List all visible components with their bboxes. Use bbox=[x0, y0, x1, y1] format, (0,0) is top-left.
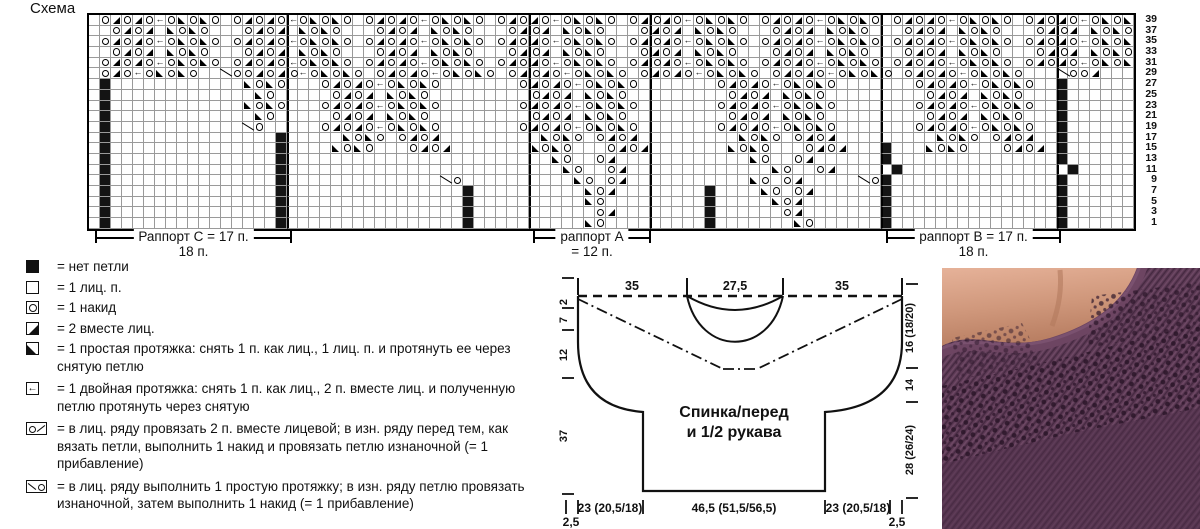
chart-cell-knit-stitch bbox=[243, 154, 254, 165]
chart-cell-yarn-over bbox=[1002, 58, 1013, 69]
chart-cell-knit-stitch bbox=[661, 90, 672, 101]
chart-cell-knit-stitch bbox=[166, 165, 177, 176]
chart-cell-no-stitch bbox=[1057, 79, 1068, 90]
chart-cell-knit-stitch bbox=[518, 186, 529, 197]
chart-cell-yarn-over bbox=[342, 101, 353, 112]
chart-cell-yarn-over bbox=[1013, 90, 1024, 101]
chart-cell-knit-stitch bbox=[661, 175, 672, 186]
yarnover-icon bbox=[26, 299, 50, 319]
ssk-symbol bbox=[26, 342, 39, 355]
chart-cell-k2tog bbox=[826, 133, 837, 144]
chart-cell-k2tog bbox=[606, 154, 617, 165]
chart-cell-knit-stitch bbox=[892, 133, 903, 144]
chart-cell-knit-stitch bbox=[210, 68, 221, 79]
chart-cell-double-decrease bbox=[815, 15, 826, 26]
chart-cell-k2tog bbox=[650, 26, 661, 37]
legend-item: = в лиц. ряду выполнить 1 простую протяж… bbox=[26, 478, 538, 513]
chart-cell-knit-stitch bbox=[386, 165, 397, 176]
chart-cell-knit-stitch bbox=[1002, 218, 1013, 229]
chart-cell-knit-stitch bbox=[1035, 68, 1046, 79]
chart-cell-knit-stitch bbox=[353, 218, 364, 229]
chart-cell-knit-stitch bbox=[1101, 68, 1112, 79]
chart-cell-yarn-over bbox=[936, 15, 947, 26]
chart-cell-knit-stitch bbox=[1024, 197, 1035, 208]
chart-cell-knit-stitch bbox=[1112, 175, 1123, 186]
chart-cell-knit-stitch bbox=[672, 165, 683, 176]
chart-cell-knit-stitch bbox=[826, 197, 837, 208]
chart-cell-yarn-over bbox=[815, 90, 826, 101]
chart-cell-knit-stitch bbox=[1046, 197, 1057, 208]
chart-cell-knit-stitch bbox=[1090, 165, 1101, 176]
chart-cell-yarn-over bbox=[958, 36, 969, 47]
chart-cell-knit-stitch bbox=[485, 15, 496, 26]
chart-cell-knit-stitch bbox=[287, 197, 298, 208]
chart-cell-yarn-over bbox=[936, 101, 947, 112]
chart-cell-knit-stitch bbox=[496, 154, 507, 165]
chart-cell-knit-stitch bbox=[694, 186, 705, 197]
chart-cell-knit-stitch bbox=[727, 218, 738, 229]
dim-top-right: 35 bbox=[835, 279, 849, 293]
chart-cell-knit-stitch bbox=[705, 154, 716, 165]
chart-cell-knit-stitch bbox=[221, 133, 232, 144]
chart-cell-knit-stitch bbox=[364, 186, 375, 197]
chart-cell-k2tog bbox=[661, 36, 672, 47]
chart-cell-knit-stitch bbox=[969, 175, 980, 186]
chart-cell-knit-stitch bbox=[870, 101, 881, 112]
chart-cell-yarn-over bbox=[606, 122, 617, 133]
chart-cell-knit-stitch bbox=[210, 154, 221, 165]
chart-cell-knit-stitch bbox=[485, 36, 496, 47]
chart-cell-double-decrease bbox=[1079, 36, 1090, 47]
double-dec-icon bbox=[26, 380, 50, 415]
chart-cell-knit-stitch bbox=[298, 197, 309, 208]
chart-cell-knit-stitch bbox=[298, 143, 309, 154]
chart-cell-knit-stitch bbox=[826, 186, 837, 197]
chart-cell-knit-stitch bbox=[595, 175, 606, 186]
chart-cell-yarn-over bbox=[782, 15, 793, 26]
chart-cell-knit-stitch bbox=[771, 218, 782, 229]
chart-cell-knit-stitch bbox=[925, 218, 936, 229]
chart-cell-knit-stitch bbox=[584, 133, 595, 144]
chart-cell-knit-stitch bbox=[221, 154, 232, 165]
chart-cell-knit-stitch bbox=[353, 154, 364, 165]
chart-cell-knit-stitch bbox=[353, 58, 364, 69]
chart-cell-knit-stitch bbox=[573, 154, 584, 165]
knit-symbol bbox=[26, 281, 39, 294]
schematic-left-ticks bbox=[562, 278, 574, 494]
chart-cell-knit-stitch bbox=[265, 133, 276, 144]
chart-cell-knit-stitch bbox=[1123, 111, 1134, 122]
chart-cell-yarn-over bbox=[100, 58, 111, 69]
chart-cell-knit-stitch bbox=[694, 90, 705, 101]
dim-right-16: 16 (18/20) bbox=[904, 303, 916, 353]
chart-cell-double-decrease bbox=[771, 101, 782, 112]
chart-cell-knit-stitch bbox=[870, 79, 881, 90]
chart-cell-slip-decrease bbox=[606, 90, 617, 101]
chart-cell-k2tog bbox=[639, 143, 650, 154]
chart-cell-knit-stitch bbox=[1024, 90, 1035, 101]
chart-cell-knit-stitch bbox=[232, 207, 243, 218]
chart-cell-knit-stitch bbox=[947, 207, 958, 218]
chart-cell-knit-stitch bbox=[221, 90, 232, 101]
chart-cell-knit-stitch bbox=[111, 175, 122, 186]
chart-cell-yarn-over bbox=[320, 79, 331, 90]
chart-cell-knit-stitch bbox=[903, 207, 914, 218]
chart-cell-knit-stitch bbox=[474, 122, 485, 133]
chart-cell-knit-stitch bbox=[232, 79, 243, 90]
chart-cell-double-decrease bbox=[551, 58, 562, 69]
chart-cell-knit-stitch bbox=[760, 218, 771, 229]
chart-cell-knit-stitch bbox=[848, 218, 859, 229]
chart-cell-slip-decrease bbox=[199, 36, 210, 47]
legend-item-text: = 2 вместе лиц. bbox=[57, 320, 538, 340]
chart-cell-knit-stitch bbox=[232, 143, 243, 154]
dim-top-center: 27,5 bbox=[723, 279, 747, 293]
chart-cell-knit-stitch bbox=[199, 186, 210, 197]
chart-cell-knit-stitch bbox=[265, 122, 276, 133]
chart-cell-knit-stitch bbox=[243, 165, 254, 176]
chart-cell-knit-stitch bbox=[111, 111, 122, 122]
chart-cell-slip-decrease bbox=[419, 122, 430, 133]
chart-cell-knit-stitch bbox=[221, 111, 232, 122]
chart-cell-knit-stitch bbox=[1090, 122, 1101, 133]
chart-cell-k2tog bbox=[782, 47, 793, 58]
chart-cell-slip-decrease bbox=[980, 90, 991, 101]
chart-cell-knit-stitch bbox=[485, 101, 496, 112]
chart-cell-knit-stitch bbox=[122, 111, 133, 122]
chart-cell-yarn-over bbox=[738, 101, 749, 112]
chart-cell-double-decrease bbox=[683, 15, 694, 26]
k2tog-icon bbox=[26, 320, 50, 340]
chart-cell-knit-stitch bbox=[925, 175, 936, 186]
page-title: Схема bbox=[30, 0, 75, 17]
chart-cell-knit-stitch bbox=[969, 197, 980, 208]
chart-cell-knit-stitch bbox=[1112, 101, 1123, 112]
chart-cell-slip-decrease bbox=[991, 122, 1002, 133]
chart-cell-knit-stitch bbox=[628, 154, 639, 165]
chart-cell-knit-stitch bbox=[958, 197, 969, 208]
chart-cell-knit-stitch bbox=[815, 218, 826, 229]
chart-cell-yarn-over bbox=[991, 111, 1002, 122]
chart-cell-slip-decrease bbox=[408, 90, 419, 101]
chart-cell-knit-stitch bbox=[859, 218, 870, 229]
chart-cell-knit-stitch bbox=[144, 197, 155, 208]
piece-label-line1: Спинка/перед bbox=[679, 404, 788, 421]
chart-cell-knit-stitch bbox=[870, 47, 881, 58]
chart-cell-knit-stitch bbox=[661, 154, 672, 165]
chart-cell-slip-decrease bbox=[199, 15, 210, 26]
chart-cell-knit-stitch bbox=[683, 197, 694, 208]
chart-cell-knit-stitch bbox=[1035, 165, 1046, 176]
chart-cell-knit-stitch bbox=[518, 218, 529, 229]
chart-cell-knit-stitch bbox=[111, 101, 122, 112]
chart-cell-knit-stitch bbox=[320, 207, 331, 218]
chart-cell-knit-stitch bbox=[177, 197, 188, 208]
chart-cell-knit-stitch bbox=[859, 154, 870, 165]
chart-cell-no-stitch bbox=[881, 218, 892, 229]
piece-outline bbox=[578, 296, 902, 491]
chart-cell-yarn-over bbox=[529, 68, 540, 79]
chart-cell-k2tog bbox=[1024, 133, 1035, 144]
chart-cell-knit-stitch bbox=[716, 186, 727, 197]
chart-cell-yarn-over bbox=[386, 122, 397, 133]
chart-cell-knit-stitch bbox=[166, 218, 177, 229]
chart-cell-knit-stitch bbox=[309, 133, 320, 144]
chart-cell-k2tog bbox=[958, 90, 969, 101]
chart-cell-slip-decrease bbox=[837, 36, 848, 47]
chart-cell-knit-stitch bbox=[441, 186, 452, 197]
chart-cell-knit-stitch bbox=[298, 186, 309, 197]
chart-cell-knit-stitch bbox=[133, 154, 144, 165]
chart-cell-knit-stitch bbox=[485, 58, 496, 69]
chart-cell-knit-stitch bbox=[397, 207, 408, 218]
chart-cell-knit-stitch bbox=[958, 186, 969, 197]
chart-cell-slip-decrease bbox=[419, 79, 430, 90]
chart-cell-slip-decrease bbox=[958, 26, 969, 37]
piece-label-line2: и 1/2 рукава bbox=[687, 424, 782, 441]
chart-cell-yarn-over bbox=[232, 36, 243, 47]
chart-cell-yarn-over bbox=[760, 15, 771, 26]
chart-cell-knit-stitch bbox=[650, 154, 661, 165]
chart-cell-k2tog bbox=[353, 122, 364, 133]
chart-cell-yarn-over bbox=[661, 26, 672, 37]
chart-cell-yarn-over bbox=[298, 36, 309, 47]
chart-cell-knit-stitch bbox=[287, 101, 298, 112]
chart-cell-knit-stitch bbox=[254, 186, 265, 197]
chart-cell-yarn-over bbox=[276, 15, 287, 26]
chart-cell-yarn-over bbox=[1002, 36, 1013, 47]
chart-cell-knit-stitch bbox=[639, 218, 650, 229]
chart-cell-slip-decrease bbox=[320, 68, 331, 79]
chart-cell-knit-stitch bbox=[298, 165, 309, 176]
chart-cell-yarn-over bbox=[870, 175, 881, 186]
chart-cell-knit-stitch bbox=[540, 175, 551, 186]
chart-cell-knit-stitch bbox=[441, 111, 452, 122]
chart-cell-yarn-over bbox=[144, 15, 155, 26]
chart-cell-knit-stitch bbox=[1013, 26, 1024, 37]
chart-cell-slip-decrease bbox=[716, 47, 727, 58]
chart-cell-slip-decrease bbox=[474, 68, 485, 79]
chart-cell-yarn-over bbox=[243, 68, 254, 79]
chart-cell-yarn-over bbox=[793, 90, 804, 101]
chart-cell-yarn-over bbox=[771, 186, 782, 197]
chart-cell-yarn-over bbox=[584, 79, 595, 90]
bracket-tick bbox=[649, 230, 651, 243]
chart-cell-k2tog bbox=[419, 143, 430, 154]
chart-cell-yarn-over bbox=[595, 154, 606, 165]
chart-cell-knit-stitch bbox=[353, 47, 364, 58]
chart-cell-yarn-over bbox=[144, 68, 155, 79]
chart-cell-k2tog bbox=[265, 36, 276, 47]
chart-cell-knit-stitch bbox=[155, 101, 166, 112]
legend-item-text: = в лиц. ряду выполнить 1 простую протяж… bbox=[57, 478, 538, 513]
chart-grid bbox=[87, 13, 1136, 231]
chart-cell-knit-stitch bbox=[320, 143, 331, 154]
chart-cell-knit-stitch bbox=[1112, 218, 1123, 229]
dim-bottom-right: 23 (20,5/18) bbox=[826, 501, 891, 515]
chart-cell-yarn-over bbox=[496, 15, 507, 26]
chart-cell-double-decrease bbox=[155, 36, 166, 47]
chart-cell-knit-stitch bbox=[562, 218, 573, 229]
chart-cell-knit-stitch bbox=[397, 175, 408, 186]
chart-cell-k2tog bbox=[111, 15, 122, 26]
chart-cell-knit-stitch bbox=[837, 122, 848, 133]
chart-cell-knit-stitch bbox=[1112, 165, 1123, 176]
chart-cell-k2tog bbox=[936, 90, 947, 101]
chart-cell-knit-stitch bbox=[782, 143, 793, 154]
chart-cell-knit-stitch bbox=[1046, 122, 1057, 133]
chart-cell-knit-stitch bbox=[1112, 122, 1123, 133]
chart-cell-knit-stitch bbox=[375, 218, 386, 229]
chart-cell-knit-stitch bbox=[551, 175, 562, 186]
chart-cell-knit-stitch bbox=[1002, 26, 1013, 37]
chart-cell-slip-decrease bbox=[595, 101, 606, 112]
chart-cell-knit-stitch bbox=[540, 186, 551, 197]
chart-cell-yarn-over bbox=[540, 36, 551, 47]
chart-cell-yarn-over bbox=[177, 47, 188, 58]
chart-cell-knit-stitch bbox=[727, 186, 738, 197]
chart-cell-yarn-over bbox=[408, 122, 419, 133]
chart-cell-knit-stitch bbox=[661, 133, 672, 144]
chart-cell-knit-stitch bbox=[375, 197, 386, 208]
chart-cell-knit-stitch bbox=[892, 175, 903, 186]
chart-cell-slip-decrease bbox=[991, 58, 1002, 69]
chart-cell-k2tog bbox=[903, 36, 914, 47]
chart-cell-knit-stitch bbox=[771, 154, 782, 165]
knit-icon bbox=[26, 279, 50, 299]
chart-cell-yarn-over bbox=[826, 143, 837, 154]
chart-cell-knit-stitch bbox=[1068, 133, 1079, 144]
chart-cell-knit-stitch bbox=[320, 154, 331, 165]
chart-cell-yarn-over bbox=[408, 79, 419, 90]
chart-cell-k2tog bbox=[936, 47, 947, 58]
chart-cell-slip-decrease bbox=[771, 197, 782, 208]
chart-cell-knit-stitch bbox=[661, 143, 672, 154]
chart-cell-knit-stitch bbox=[1024, 111, 1035, 122]
chart-cell-k2tog bbox=[408, 133, 419, 144]
chart-cell-knit-stitch bbox=[408, 165, 419, 176]
chart-cell-yarn-over bbox=[452, 175, 463, 186]
chart-cell-yarn-over bbox=[1035, 26, 1046, 37]
chart-cell-k2tog bbox=[947, 101, 958, 112]
chart-cell-knit-stitch bbox=[287, 175, 298, 186]
chart-cell-no-stitch bbox=[1057, 175, 1068, 186]
chart-cell-knit-stitch bbox=[1101, 175, 1112, 186]
chart-cell-knit-stitch bbox=[221, 175, 232, 186]
chart-cell-slip-decrease bbox=[177, 36, 188, 47]
chart-cell-yarn-over bbox=[617, 68, 628, 79]
chart-cell-knit-stitch bbox=[617, 36, 628, 47]
chart-cell-knit-stitch bbox=[1013, 15, 1024, 26]
chart-cell-slip-decrease bbox=[562, 165, 573, 176]
chart-cell-knit-stitch bbox=[232, 186, 243, 197]
chart-cell-knit-stitch bbox=[1123, 207, 1134, 218]
chart-cell-k2tog bbox=[650, 47, 661, 58]
chart-cell-yarn-over bbox=[430, 143, 441, 154]
chart-cell-knit-stitch bbox=[463, 133, 474, 144]
chart-cell-knit-stitch bbox=[1123, 79, 1134, 90]
chart-cell-knit-stitch bbox=[188, 143, 199, 154]
chart-cell-slip-decrease bbox=[562, 133, 573, 144]
chart-cell-knit-stitch bbox=[474, 165, 485, 176]
chart-cell-no-stitch bbox=[100, 175, 111, 186]
chart-cell-knit-stitch bbox=[210, 133, 221, 144]
chart-cell-slip-decrease bbox=[155, 68, 166, 79]
chart-cell-yarn-over bbox=[914, 79, 925, 90]
chart-cell-yarn-over bbox=[760, 79, 771, 90]
chart-cell-yarn-over bbox=[364, 15, 375, 26]
chart-cell-yarn-over bbox=[738, 143, 749, 154]
chart-cell-knit-stitch bbox=[529, 175, 540, 186]
chart-cell-slip-decrease bbox=[1002, 68, 1013, 79]
chart-cell-knit-stitch bbox=[903, 122, 914, 133]
chart-cell-knit-stitch bbox=[771, 175, 782, 186]
chart-cell-slip-decrease bbox=[771, 165, 782, 176]
chart-cell-yarn-over bbox=[397, 111, 408, 122]
chart-cell-double-decrease bbox=[155, 58, 166, 69]
chart-cell-knit-stitch bbox=[177, 218, 188, 229]
chart-cell-k2tog bbox=[738, 111, 749, 122]
chart-cell-knit-stitch bbox=[364, 197, 375, 208]
chart-cell-yarn-over bbox=[331, 26, 342, 37]
chart-cell-knit-stitch bbox=[991, 143, 1002, 154]
chart-cell-knit-stitch bbox=[496, 197, 507, 208]
chart-cell-knit-stitch bbox=[232, 218, 243, 229]
chart-cell-knit-stitch bbox=[210, 197, 221, 208]
chart-cell-knit-stitch bbox=[221, 36, 232, 47]
chart-cell-knit-stitch bbox=[826, 207, 837, 218]
chart-cell-slip-decrease bbox=[243, 79, 254, 90]
chart-cell-k2tog bbox=[386, 47, 397, 58]
chart-cell-knit-stitch bbox=[177, 165, 188, 176]
chart-cell-knit-stitch bbox=[188, 218, 199, 229]
chart-cell-knit-stitch bbox=[1112, 143, 1123, 154]
chart-cell-knit-stitch bbox=[683, 143, 694, 154]
chart-cell-knit-stitch bbox=[463, 101, 474, 112]
chart-cell-yarn-over bbox=[254, 79, 265, 90]
chart-cell-slip-decrease bbox=[562, 47, 573, 58]
chart-cell-no-stitch bbox=[276, 175, 287, 186]
chart-cell-knit-stitch bbox=[188, 186, 199, 197]
chart-cell-slip-decrease bbox=[1013, 101, 1024, 112]
chart-cell-slip-decrease bbox=[188, 47, 199, 58]
chart-cell-knit-stitch bbox=[958, 175, 969, 186]
chart-cell-yarn-over bbox=[628, 79, 639, 90]
chart-cell-knit-stitch bbox=[155, 143, 166, 154]
chart-cell-knit-stitch bbox=[265, 165, 276, 176]
chart-cell-knit-stitch bbox=[419, 186, 430, 197]
chart-cell-knit-stitch bbox=[705, 90, 716, 101]
chart-cell-yarn-over bbox=[540, 15, 551, 26]
chart-cell-knit-stitch bbox=[1123, 143, 1134, 154]
chart-cell-knit-stitch bbox=[221, 143, 232, 154]
chart-cell-knit-stitch bbox=[650, 101, 661, 112]
chart-cell-knit-stitch bbox=[243, 133, 254, 144]
chart-cell-knit-stitch bbox=[1079, 218, 1090, 229]
chart-cell-yarn-over bbox=[463, 47, 474, 58]
chart-cell-slip-decrease bbox=[991, 79, 1002, 90]
chart-cell-knit-stitch bbox=[1024, 47, 1035, 58]
chart-cell-yarn-over bbox=[793, 111, 804, 122]
chart-cell-k2tog bbox=[540, 26, 551, 37]
chart-cell-knit-stitch bbox=[551, 186, 562, 197]
chart-cell-yarn-over bbox=[595, 197, 606, 208]
chart-cell-knit-stitch bbox=[881, 15, 892, 26]
chart-cell-knit-stitch bbox=[309, 186, 320, 197]
chart-cell-knit-stitch bbox=[199, 218, 210, 229]
chart-cell-k2tog bbox=[1046, 26, 1057, 37]
chart-cell-k2tog bbox=[606, 133, 617, 144]
